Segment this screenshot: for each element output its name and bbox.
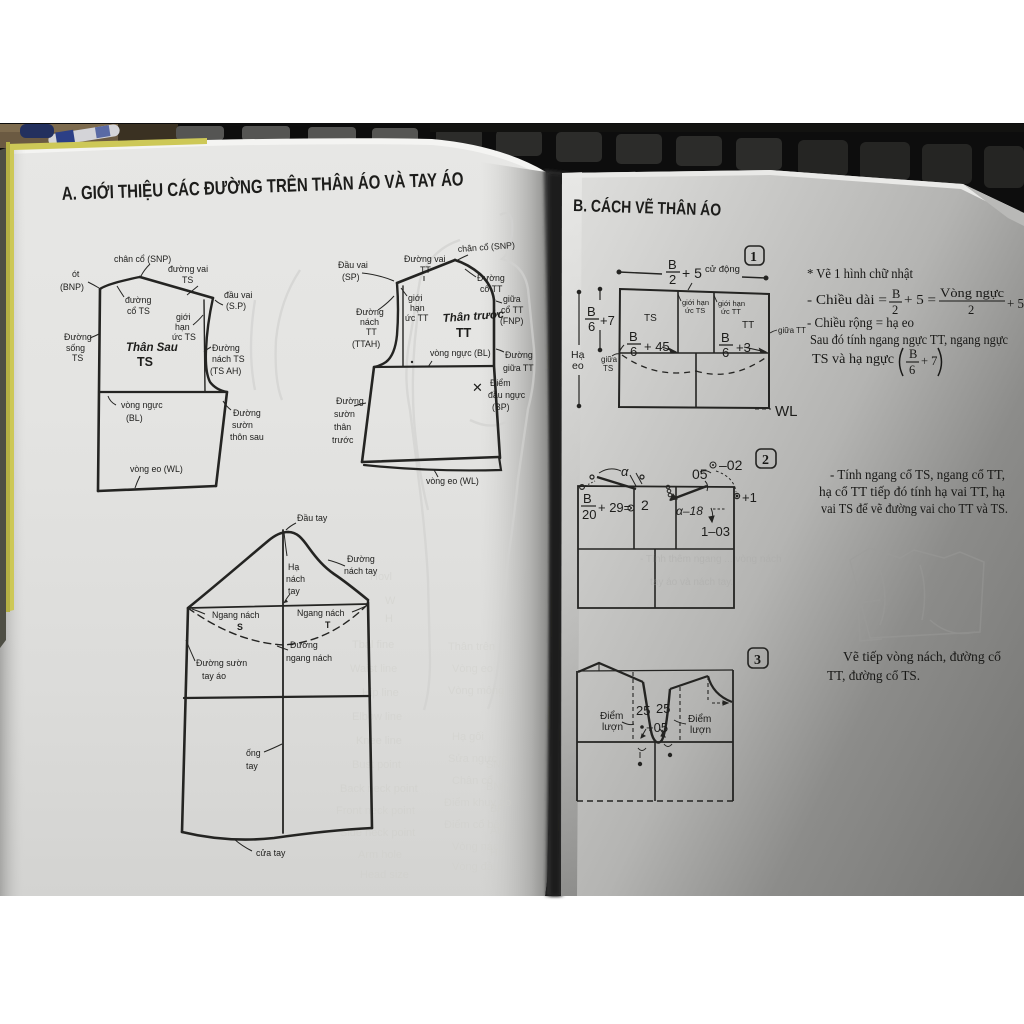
svg-text:giữa: giữa xyxy=(503,294,521,304)
svg-text:+ 29=: + 29= xyxy=(598,500,631,515)
svg-text:ức TT: ức TT xyxy=(721,307,741,316)
svg-text:BP: BP xyxy=(490,803,505,815)
svg-text:W: W xyxy=(385,595,396,607)
svg-text:6: 6 xyxy=(588,319,595,334)
svg-text:cửa tay: cửa tay xyxy=(256,848,286,858)
svg-text:Sau đó tính ngang ngực TT, nga: Sau đó tính ngang ngực TT, ngang ngực xyxy=(810,332,1008,347)
svg-text:Hip line: Hip line xyxy=(362,687,399,699)
svg-text:TS: TS xyxy=(603,364,613,373)
svg-text:sườn: sườn xyxy=(232,420,253,430)
svg-text:hạn: hạn xyxy=(410,303,425,313)
svg-text:2: 2 xyxy=(669,272,676,287)
svg-text:TT: TT xyxy=(456,326,472,340)
svg-text:hạ cổ TT tiếp đó tính hạ vai T: hạ cổ TT tiếp đó tính hạ vai TT, hạ xyxy=(819,484,1005,499)
svg-text:Vòng ngực: Vòng ngực xyxy=(940,286,1005,300)
svg-text:thân: thân xyxy=(334,422,351,432)
svg-text:TT, đường cổ TS.: TT, đường cổ TS. xyxy=(827,668,920,683)
svg-text:Thân Sau: Thân Sau xyxy=(126,342,178,354)
svg-text:+05: +05 xyxy=(646,720,668,735)
svg-text:Đường: Đường xyxy=(233,408,261,418)
svg-text:Đường: Đường xyxy=(290,640,318,650)
svg-text:+ 7: + 7 xyxy=(921,354,937,368)
svg-text:α: α xyxy=(621,464,629,479)
svg-text:cổ TT: cổ TT xyxy=(480,284,503,294)
svg-text:S: S xyxy=(237,622,243,632)
svg-text:(BNP): (BNP) xyxy=(60,282,84,292)
svg-text:Đường: Đường xyxy=(64,332,92,342)
svg-text:2: 2 xyxy=(641,497,649,513)
svg-text:trước: trước xyxy=(332,435,354,445)
svg-text:đường vai: đường vai xyxy=(168,264,208,274)
svg-text:Arm hole: Arm hole xyxy=(358,849,402,861)
svg-text:T: T xyxy=(325,620,331,630)
svg-text:–02: –02 xyxy=(719,457,743,473)
svg-text:Vẽ tiếp vòng nách, đường cổ: Vẽ tiếp vòng nách, đường cổ xyxy=(843,649,1001,664)
svg-text:ức TS: ức TS xyxy=(685,306,705,315)
svg-text:TS và hạ ngực: TS và hạ ngực xyxy=(812,351,894,366)
svg-text:Tbal fine: Tbal fine xyxy=(352,639,394,651)
svg-text:nách tay: nách tay xyxy=(344,566,378,576)
svg-text:Đường: Đường xyxy=(212,343,240,353)
svg-text:20: 20 xyxy=(582,507,596,522)
svg-text:giữa TT: giữa TT xyxy=(503,363,534,373)
svg-text:1–03: 1–03 xyxy=(701,524,730,539)
svg-text:✕: ✕ xyxy=(472,380,483,395)
svg-text:Vòng eo: Vòng eo xyxy=(452,663,493,675)
svg-text:hạn: hạn xyxy=(175,322,190,332)
svg-text:Head size: Head size xyxy=(360,869,409,881)
svg-text:Đường: Đường xyxy=(505,350,533,360)
svg-text:đầu vai: đầu vai xyxy=(224,290,252,300)
svg-text:BNP: BNP xyxy=(486,781,509,793)
svg-text:B: B xyxy=(629,329,638,344)
svg-text:Back neck point: Back neck point xyxy=(340,783,418,795)
svg-text:(BP): (BP) xyxy=(492,402,510,412)
svg-text:- Chiều rộng = hạ eo: - Chiều rộng = hạ eo xyxy=(807,315,914,330)
svg-text:Đường: Đường xyxy=(347,554,375,564)
svg-text:chân cổ (SNP): chân cổ (SNP) xyxy=(114,254,171,264)
svg-text:+3: +3 xyxy=(736,340,751,355)
svg-text:6: 6 xyxy=(630,344,637,359)
svg-text:Knee line: Knee line xyxy=(356,735,402,747)
svg-text:25: 25 xyxy=(636,703,650,718)
svg-text:Điểm: Điểm xyxy=(600,710,623,722)
svg-text:Đường sườn: Đường sườn xyxy=(196,658,247,668)
svg-text:TS: TS xyxy=(137,355,153,369)
svg-text:tay áo và nách tay.: tay áo và nách tay. xyxy=(650,577,733,588)
svg-text:α–18: α–18 xyxy=(676,504,703,518)
svg-text:+ 5: + 5 xyxy=(1007,296,1024,311)
svg-text:SNP: SNP xyxy=(486,759,509,771)
svg-text:Ngang nách: Ngang nách xyxy=(212,610,260,620)
svg-text:TS: TS xyxy=(644,313,657,324)
svg-text:B: B xyxy=(909,347,917,361)
svg-text:- Chiều dài =: - Chiều dài = xyxy=(807,292,887,307)
svg-text:sống: sống xyxy=(66,343,85,353)
svg-text:B: B xyxy=(668,257,677,272)
svg-text:+ 5: + 5 xyxy=(682,265,702,281)
svg-text:+ 45: + 45 xyxy=(644,339,670,354)
svg-text:H: H xyxy=(385,613,393,625)
svg-text:6: 6 xyxy=(909,363,915,377)
svg-text:giữa TT: giữa TT xyxy=(778,326,806,335)
svg-text:Thân trên: Thân trên xyxy=(448,641,495,653)
svg-text:2: 2 xyxy=(762,453,769,468)
svg-text:B: B xyxy=(587,304,596,319)
svg-text:thôn sau: thôn sau xyxy=(230,432,264,442)
svg-text:đường: đường xyxy=(125,295,151,305)
svg-text:Vòng mông: Vòng mông xyxy=(448,685,504,697)
svg-text:cử động: cử động xyxy=(705,264,740,275)
svg-text:Waist line: Waist line xyxy=(350,663,397,675)
svg-text:lượn: lượn xyxy=(690,725,711,736)
svg-text:lượn: lượn xyxy=(602,722,623,733)
svg-text:B: B xyxy=(892,287,900,301)
svg-text:Đầu tay: Đầu tay xyxy=(297,513,328,523)
svg-text:Front neck point: Front neck point xyxy=(336,805,415,817)
svg-text:Vòng đầu: Vòng đầu xyxy=(452,861,499,873)
svg-text:TT: TT xyxy=(420,265,431,275)
svg-text:Bust point: Bust point xyxy=(352,759,401,771)
svg-text:(S.P): (S.P) xyxy=(226,301,246,311)
svg-text:- Tính ngang cổ TS, ngang cổ T: - Tính ngang cổ TS, ngang cổ TT, xyxy=(830,467,1005,482)
svg-text:tay: tay xyxy=(246,761,258,771)
svg-text:nách: nách xyxy=(286,574,305,584)
svg-text:nách TS: nách TS xyxy=(212,354,245,364)
svg-text:giữa: giữa xyxy=(601,355,618,364)
svg-text:Điểm: Điểm xyxy=(688,713,711,725)
svg-text:Hạ gối: Hạ gối xyxy=(452,731,484,743)
svg-text:vòng ngực (BL): vòng ngực (BL) xyxy=(430,348,491,358)
svg-text:TT: TT xyxy=(742,320,754,331)
svg-text:(TTAH): (TTAH) xyxy=(352,339,380,349)
svg-text:B: B xyxy=(721,330,730,345)
svg-text:(TS AH): (TS AH) xyxy=(210,366,241,376)
svg-text:+1: +1 xyxy=(742,490,757,505)
svg-text:ngang nách: ngang nách xyxy=(286,653,332,663)
svg-text:vòng ngực: vòng ngực xyxy=(121,400,163,410)
svg-text:TS: TS xyxy=(182,275,193,285)
svg-text:Hạ: Hạ xyxy=(288,562,299,572)
svg-text:B: B xyxy=(583,491,592,506)
svg-text:eo: eo xyxy=(572,360,584,372)
svg-text:6: 6 xyxy=(722,345,729,360)
svg-text:(SP): (SP) xyxy=(342,272,360,282)
svg-text:cổ TS: cổ TS xyxy=(127,306,150,316)
svg-text:+ 5 =: + 5 = xyxy=(904,292,936,307)
svg-text:AH: AH xyxy=(490,825,505,837)
svg-text:1: 1 xyxy=(750,250,757,265)
svg-text:05: 05 xyxy=(692,466,708,482)
svg-text:vòng eo (WL): vòng eo (WL) xyxy=(130,464,183,474)
svg-text:Điểm: Điểm xyxy=(490,378,511,388)
svg-text:HS: HS xyxy=(490,847,505,859)
svg-text:ức TT: ức TT xyxy=(405,313,429,323)
svg-text:TT: TT xyxy=(366,327,377,337)
svg-text:(BL): (BL) xyxy=(126,413,143,423)
svg-text:sườn: sườn xyxy=(334,409,355,419)
svg-text:- Tính thêm ngang ... vòng nác: - Tính thêm ngang ... vòng nách xyxy=(640,554,782,565)
svg-text:nách: nách xyxy=(360,317,379,327)
svg-text:vòng eo (WL): vòng eo (WL) xyxy=(426,476,479,486)
svg-text:WL: WL xyxy=(775,403,798,420)
svg-text:vai TS để vẽ đường vai cho TT: vai TS để vẽ đường vai cho TT và TS. xyxy=(821,501,1008,516)
svg-text:ức TS: ức TS xyxy=(172,332,196,342)
svg-text:ót: ót xyxy=(72,269,80,279)
svg-text:giới: giới xyxy=(408,293,423,303)
svg-text:Ngang nách: Ngang nách xyxy=(297,608,345,618)
svg-text:2: 2 xyxy=(968,303,974,317)
svg-text:đầu ngực: đầu ngực xyxy=(488,390,526,400)
svg-text:3: 3 xyxy=(754,653,761,668)
svg-text:cổ TT: cổ TT xyxy=(501,305,524,315)
svg-text:Đường vai: Đường vai xyxy=(404,254,446,264)
svg-text:* Vẽ 1 hình chữ nhật: * Vẽ 1 hình chữ nhật xyxy=(807,266,913,281)
svg-text:tay áo: tay áo xyxy=(202,671,226,681)
svg-text:+7: +7 xyxy=(600,313,615,328)
svg-text:Đầu vai: Đầu vai xyxy=(338,260,368,270)
svg-text:giới: giới xyxy=(176,312,191,322)
svg-text:Elbow line: Elbow line xyxy=(352,711,402,723)
svg-text:Đường: Đường xyxy=(477,273,505,283)
svg-text:TS: TS xyxy=(72,353,83,363)
svg-text:25: 25 xyxy=(656,701,670,716)
svg-text:ống: ống xyxy=(246,748,261,758)
